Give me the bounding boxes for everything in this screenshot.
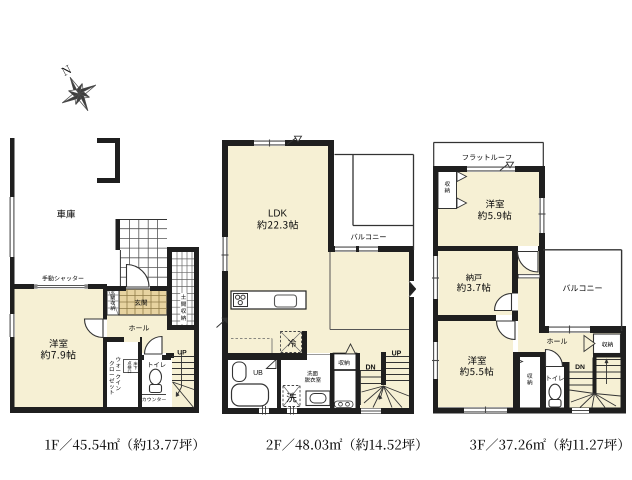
- svg-text:UP: UP: [392, 351, 402, 358]
- svg-text:UP: UP: [177, 350, 187, 357]
- svg-text:DN: DN: [365, 365, 375, 372]
- svg-text:LDK: LDK: [268, 208, 288, 219]
- svg-text:UB: UB: [253, 370, 263, 377]
- svg-text:DN: DN: [575, 364, 585, 371]
